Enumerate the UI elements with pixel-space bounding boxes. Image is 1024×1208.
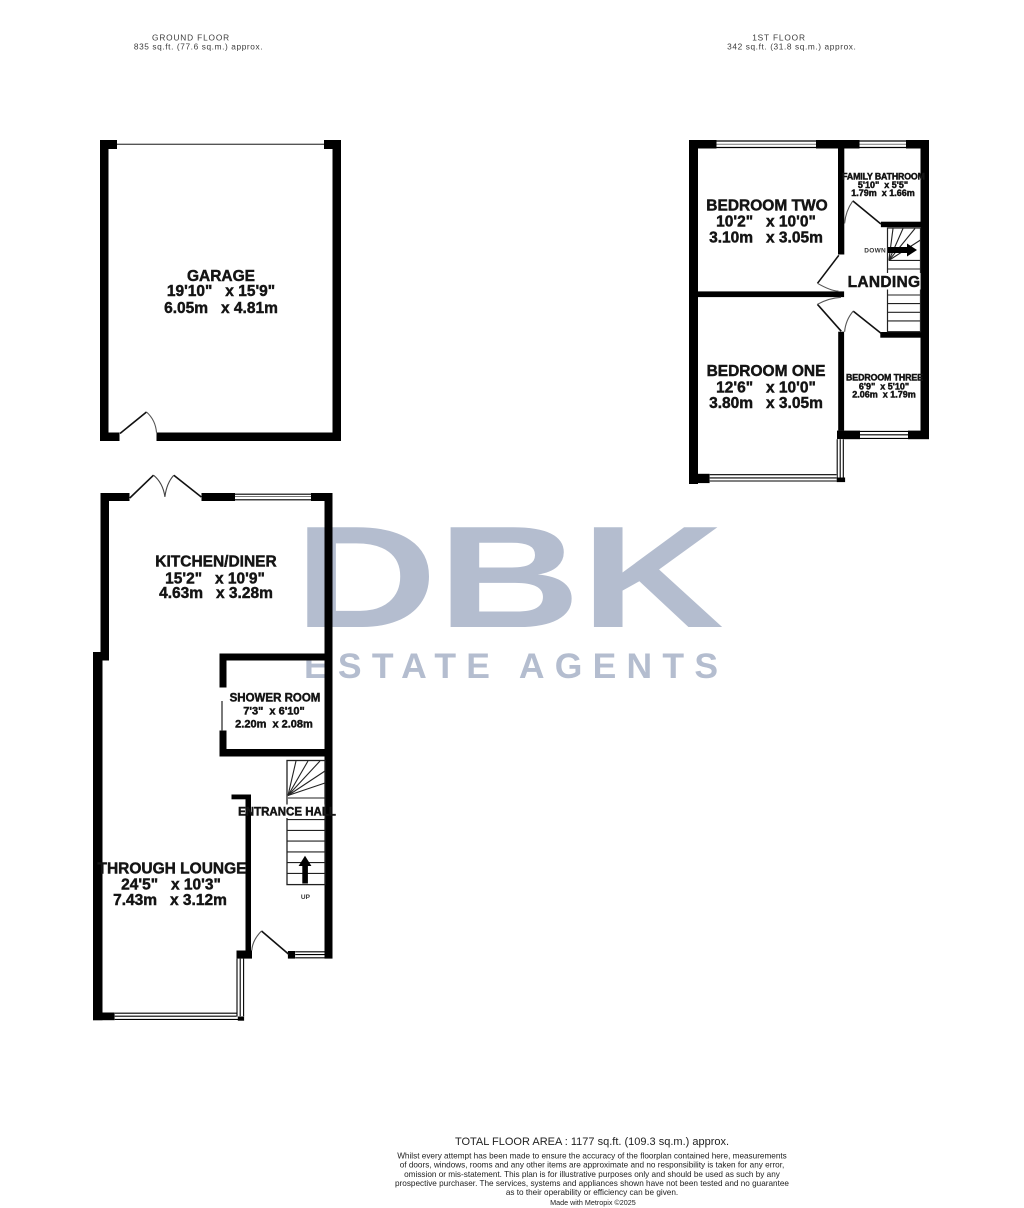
svg-text:ENTRANCE HALL: ENTRANCE HALL — [238, 807, 336, 819]
svg-text:BEDROOM TWO: BEDROOM TWO — [706, 198, 827, 215]
svg-text:prospective purchaser. The ser: prospective purchaser. The services, sys… — [395, 1179, 789, 1188]
svg-text:Made with Metropix ©2025: Made with Metropix ©2025 — [550, 1198, 636, 1207]
svg-text:3.10m x 3.05m: 3.10m x 3.05m — [709, 229, 823, 246]
svg-text:LANDING: LANDING — [848, 274, 921, 291]
svg-text:835 sq.ft. (77.6 sq.m.) approx: 835 sq.ft. (77.6 sq.m.) approx. — [134, 41, 263, 51]
svg-text:DBK: DBK — [294, 496, 724, 658]
svg-text:as to their operability or eff: as to their operability or efficiency ca… — [506, 1188, 678, 1197]
svg-text:7.43m x 3.12m: 7.43m x 3.12m — [113, 892, 227, 909]
svg-text:19'10" x 15'9": 19'10" x 15'9" — [167, 283, 275, 300]
svg-text:6.05m x 4.81m: 6.05m x 4.81m — [164, 300, 278, 317]
svg-text:THROUGH LOUNGE: THROUGH LOUNGE — [98, 861, 247, 878]
svg-text:Whilst every attempt has been: Whilst every attempt has been made to en… — [397, 1152, 787, 1161]
svg-text:1.79m x 1.66m: 1.79m x 1.66m — [851, 188, 915, 198]
svg-text:342 sq.ft. (31.8 sq.m.) approx: 342 sq.ft. (31.8 sq.m.) approx. — [727, 41, 856, 51]
svg-text:24'5" x 10'3": 24'5" x 10'3" — [121, 876, 221, 893]
svg-text:10'2" x 10'0": 10'2" x 10'0" — [716, 213, 816, 230]
svg-text:4.63m x 3.28m: 4.63m x 3.28m — [159, 585, 273, 602]
svg-text:2.06m x 1.79m: 2.06m x 1.79m — [852, 390, 916, 400]
svg-text:omission or mis-statement. Thi: omission or mis-statement. This plan is … — [404, 1170, 781, 1179]
svg-text:BEDROOM ONE: BEDROOM ONE — [707, 363, 826, 380]
svg-text:2.20m x 2.08m: 2.20m x 2.08m — [235, 718, 313, 730]
svg-text:KITCHEN/DINER: KITCHEN/DINER — [155, 554, 276, 571]
svg-text:12'6" x 10'0": 12'6" x 10'0" — [716, 380, 816, 397]
svg-text:7'3" x 6'10": 7'3" x 6'10" — [243, 705, 305, 717]
svg-text:SHOWER ROOM: SHOWER ROOM — [230, 693, 321, 705]
svg-text:3.80m x 3.05m: 3.80m x 3.05m — [709, 395, 823, 412]
svg-text:DOWN: DOWN — [864, 248, 886, 255]
svg-text:UP: UP — [301, 894, 311, 901]
svg-text:of doors, windows, rooms and a: of doors, windows, rooms and any other i… — [400, 1161, 785, 1170]
svg-text:TOTAL FLOOR AREA : 1177 sq.ft.: TOTAL FLOOR AREA : 1177 sq.ft. (109.3 sq… — [455, 1136, 729, 1148]
